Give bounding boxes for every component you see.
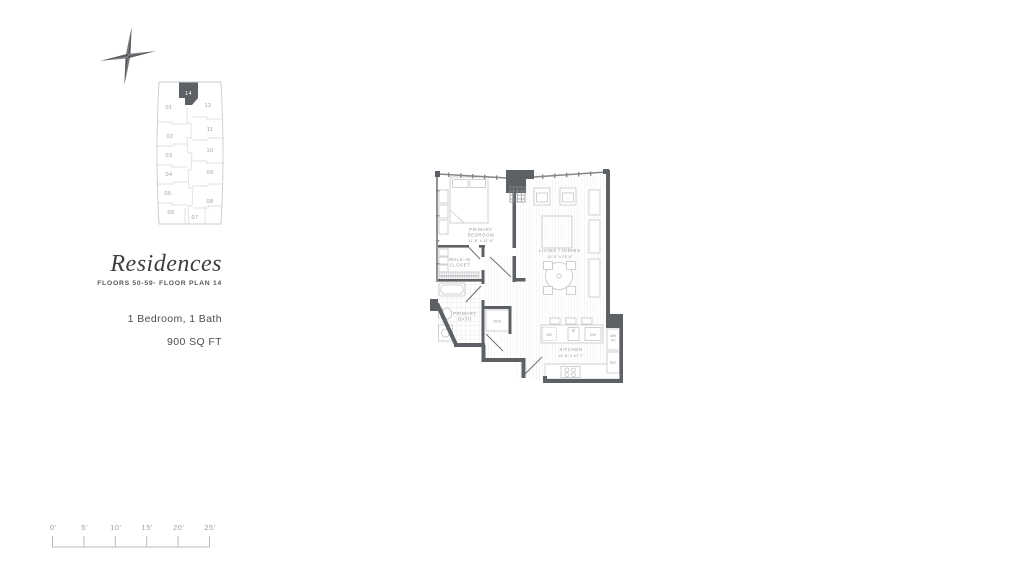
building-key-plan: 01 02 03 04 05 06 07 08 09 10 11 12 14 (152, 78, 228, 228)
key-plan-unit-06: 06 (167, 210, 174, 216)
key-plan-unit-12: 12 (204, 103, 211, 109)
stool-2 (566, 318, 576, 324)
scale-bar-labels: 0' 5' 10' 15' 20' 25' (50, 523, 216, 532)
primary-bedroom-dims: 11'-6" x 12'-6" (468, 239, 494, 243)
key-plan-unit-05: 05 (164, 191, 171, 197)
page-title: Residences (40, 252, 222, 277)
washer-dryer-label: W/D (493, 319, 501, 324)
page-subtitle: FLOORS 50-59- FLOOR PLAN 14 (40, 280, 222, 287)
closet-shelf-1 (439, 249, 448, 256)
scale-label-25: 25' (204, 523, 215, 532)
key-plan-unit-14-label: 14 (185, 91, 192, 97)
wall-block-left (430, 299, 438, 311)
dining-chair-3 (544, 287, 553, 295)
built-in-console-3 (589, 259, 600, 297)
kitchen-label: KITCHEN (559, 347, 582, 352)
wall-corridor-b (482, 270, 485, 284)
primary-bedroom-label-2: BEDROOM (468, 233, 494, 238)
key-plan-unit-03: 03 (165, 153, 172, 159)
wine-cooler-label: WC (546, 333, 552, 337)
scale-label-0: 0' (50, 523, 57, 532)
dining-chair-2 (567, 262, 576, 270)
bed-bath-count: 1 Bedroom, 1 Bath (40, 313, 222, 325)
wall-corridor-chunk (513, 278, 526, 282)
closet-shelf-3 (439, 265, 448, 272)
bed-pillow-right (470, 180, 486, 188)
primary-bedroom-label-1: PRIMARY (469, 227, 493, 232)
key-plan-unit-08: 08 (206, 199, 213, 205)
key-plan-unit-07: 07 (191, 215, 198, 221)
kitchen-dims: 10'-8" x 10'-7" (558, 354, 584, 358)
closet-rod-1 (439, 272, 479, 276)
dining-chair-4 (567, 287, 576, 295)
wall-wd-right (509, 306, 512, 334)
wall-right-step (606, 314, 623, 328)
wardrobe-1 (439, 190, 448, 203)
compass-north-star-icon (98, 25, 158, 87)
scale-label-5: 5' (81, 523, 88, 532)
wall-entry-door-jamb (543, 376, 547, 383)
primary-bath-label-2: BATH (458, 317, 472, 322)
wall-bedroom-living (513, 192, 517, 248)
scale-label-20: 20' (173, 523, 184, 532)
dining-chair-1 (544, 262, 553, 270)
wall-right-upper (606, 170, 610, 316)
bed-pillow-left (453, 180, 469, 188)
stool-3 (582, 318, 592, 324)
key-plan-unit-02: 02 (166, 134, 173, 140)
entry-floor (523, 359, 546, 380)
wall-right-lower (620, 326, 624, 383)
key-plan-unit-09: 09 (206, 170, 213, 176)
wardrobe-3 (439, 220, 448, 234)
key-plan-unit-11: 11 (207, 127, 214, 133)
closet-shelf-2 (439, 257, 448, 264)
scale-label-15: 15' (142, 523, 153, 532)
stool-1 (550, 318, 560, 324)
title-block: Residences FLOORS 50-59- FLOOR PLAN 14 (40, 252, 222, 287)
built-in-console-1 (589, 190, 600, 215)
wardrobe-2 (439, 205, 448, 218)
microwave-label-1: MW (610, 334, 616, 338)
scale-bar-ticks (53, 536, 210, 547)
square-footage: 900 SQ FT (40, 336, 222, 348)
floor-plan: PRIMARY BEDROOM 11'-6" x 12'-6" WALK-IN … (424, 160, 644, 402)
walk-in-closet-label-1: WALK-IN (449, 257, 471, 262)
refrigerator-label: REF (610, 361, 617, 365)
scale-bar: 0' 5' 10' 15' 20' 25' (48, 521, 218, 553)
primary-bath-label-1: PRIMARY (453, 311, 477, 316)
living-dining-dims: 13'-9" x 23'-9" (547, 255, 573, 259)
walk-in-closet-label-2: CLOSET (450, 263, 471, 268)
key-plan-unit-10: 10 (206, 148, 213, 154)
key-plan-unit-04: 04 (165, 172, 172, 178)
wall-kitchen-bottom (545, 379, 623, 383)
wall-entry-right-step (522, 360, 526, 378)
built-in-console-2 (589, 220, 600, 253)
wall-closet-bath (438, 279, 482, 282)
wall-corner-topleft (435, 171, 440, 177)
wall-corridor-a (482, 247, 485, 257)
key-plan-unit-01: 01 (165, 105, 172, 111)
wall-entry-bottom (482, 358, 526, 362)
wall-bedroom-closet-a (438, 245, 469, 248)
wall-bath-bottom (454, 343, 485, 347)
wall-wd-top (484, 306, 511, 309)
dishwasher-label: DW (590, 333, 597, 337)
living-dining-label: LIVING / DINING (539, 248, 581, 253)
scale-label-10: 10' (110, 523, 121, 532)
microwave-label-2: OV (611, 339, 617, 343)
